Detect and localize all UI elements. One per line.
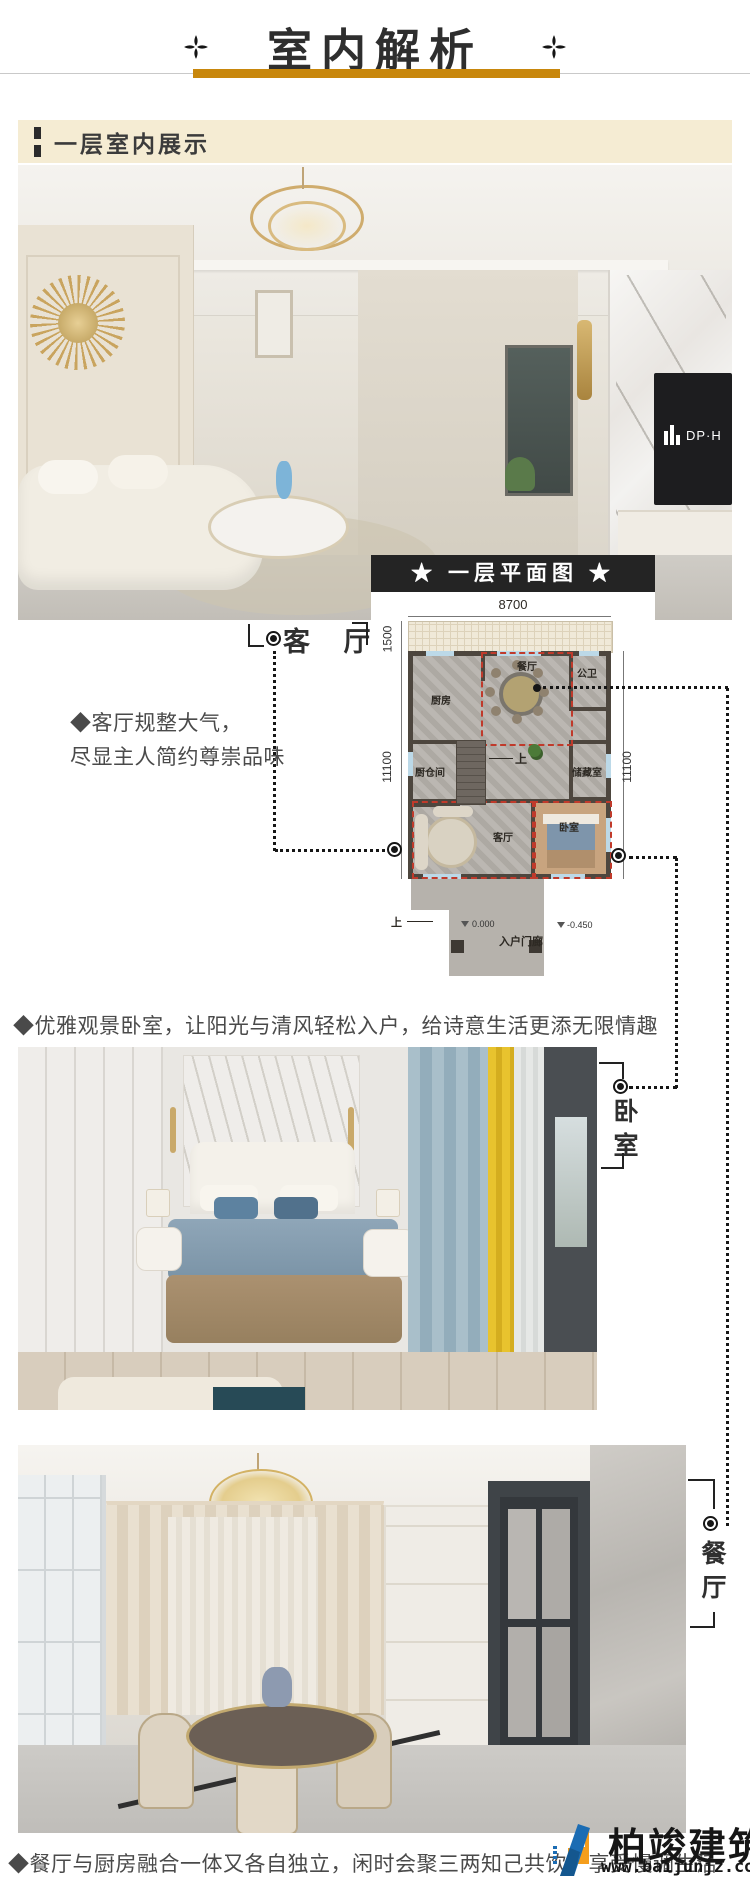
entry-floor [411,879,544,910]
curtain-yellow [488,1047,514,1382]
dining-chair [512,714,522,724]
framed-art [255,290,293,358]
plant [505,457,535,491]
living-callout-dot [268,633,279,644]
wardrobe [18,1047,163,1357]
plan-label-stairs-up-entry: 上 [391,914,402,930]
living-sofa [433,806,473,817]
table-lamp [146,1189,170,1217]
dim-8700: 8700 [371,597,655,612]
dining-table [186,1703,377,1769]
connector-bedroom-vertical [675,858,678,1088]
pillow-blue [214,1197,258,1219]
plan-label-stairs-up: 上 [515,750,527,767]
bedroom-heading: ◆优雅观景卧室，让阳光与清风轻松入户，给诗意生活更添无限情趣 [13,1010,658,1040]
living-bracket-left [248,624,264,647]
floor-plan-title: ★ 一层平面图 ★ [371,555,655,592]
stairs [456,740,486,805]
plan-level-main: 0.000 [472,919,495,929]
baijun-logo-icon [540,1818,604,1882]
nightstand [136,1227,182,1271]
window [606,754,611,778]
chandelier [250,167,360,259]
dashed-bar-icon [34,127,41,157]
connector-dining-horizontal [543,686,728,689]
dining-chair [491,706,501,716]
living-desc-line2: 尽显主人简约尊崇品味 [70,741,285,771]
curtain-sheer [514,1047,544,1382]
plan-label-kitchen: 厨房 [431,692,451,707]
connector-living-horizontal [275,849,391,852]
plant-icon [528,744,541,757]
entry-porch-terrace [408,621,613,653]
bedroom-bracket-top [599,1062,624,1079]
bedroom-photo [18,1047,597,1410]
window [579,651,599,656]
dim-line-porch [401,621,402,651]
plan-label-dining: 餐厅 [517,658,537,673]
plan-level-porch: -0.450 [567,920,593,930]
petal-ornament-right-icon [541,31,567,63]
entry-arrow-line [407,921,433,922]
gold-wall-art [577,320,592,400]
living-room-photo: DP·H [18,165,732,620]
sofa-cushion [38,460,98,494]
wall-lamp [170,1107,176,1153]
watermark-url: www.baijunjz.com [601,1857,750,1877]
wall [569,707,611,711]
sheer-curtain [168,1517,318,1715]
living-sofa [415,814,428,870]
coffee-table [208,495,349,559]
petal-ornament-left-icon [183,31,209,63]
connector-bedroom-plan-dot [613,850,624,861]
window-view [555,1117,587,1247]
bedroom-bracket-bottom [601,1153,624,1169]
dim-11100-right: 11100 [620,751,634,783]
dining-room-photo [18,1445,686,1833]
connector-bedroom-horizontal-bottom [629,1086,677,1089]
pillow-blue [274,1197,318,1219]
connector-dining-vertical [726,688,729,1526]
french-door [18,1475,106,1785]
dark-door [488,1481,590,1787]
section-banner-label: 一层室内展示 [54,125,210,159]
plan-label-bath: 公卫 [577,665,597,680]
living-room-callout-label: 客 厅 [283,620,384,659]
wall [569,740,611,744]
bench-box [213,1387,305,1410]
dim-11100-left: 11100 [380,751,394,783]
dim-line-top [408,616,611,617]
tv-screen: DP·H [654,373,732,505]
tv-brand-logo: DP·H [686,428,722,443]
header-gold-underline [193,69,560,78]
plan-label-bedroom: 卧室 [559,819,579,834]
window [408,752,413,776]
plan-label-pantry: 厨仓间 [415,764,445,779]
flower-vase [262,1667,292,1707]
plan-label-living: 客厅 [493,829,513,844]
stairs-arrow-line [489,758,513,759]
connector-bedroom-label-dot [615,1081,626,1092]
blanket-brown [166,1275,402,1343]
cabinet-niche [384,1505,492,1759]
window [426,651,454,656]
plan-label-storage: 储藏室 [572,764,602,779]
sunburst-center [58,303,98,343]
entry-post [451,940,464,953]
dining-chair [533,706,543,716]
living-bracket-right [352,622,368,645]
dining-bracket-bottom [690,1612,715,1628]
dining-chair [138,1713,194,1809]
dining-bracket-top [688,1479,715,1509]
plan-label-entry-porch: 入户门廊 [499,933,543,949]
sofa-cushion [108,455,168,489]
connector-dining-label-dot [705,1518,716,1529]
dining-chair [485,687,495,697]
floor-plan: 8700 1500 11100 11100 [371,592,655,977]
dim-line-left [401,651,402,879]
bed-foot [547,850,595,868]
connector-living-plan-dot [389,844,400,855]
level-marker-icon [557,922,565,928]
living-rug [425,816,477,868]
page: 室内解析 一层室内展示 DP·H [0,0,750,1890]
level-marker-icon [461,921,469,927]
table-lamp [376,1189,400,1217]
dining-label: 餐厅 [694,1540,730,1608]
connector-bedroom-horizontal-top [629,856,677,859]
marble-wall [590,1445,686,1785]
connector-dining-plan-dot [533,684,541,692]
dining-chair [491,668,501,678]
living-desc-line1: ◆客厅规整大气， [70,707,242,737]
blue-vase [276,461,292,499]
section-banner: 一层室内展示 [18,120,732,163]
